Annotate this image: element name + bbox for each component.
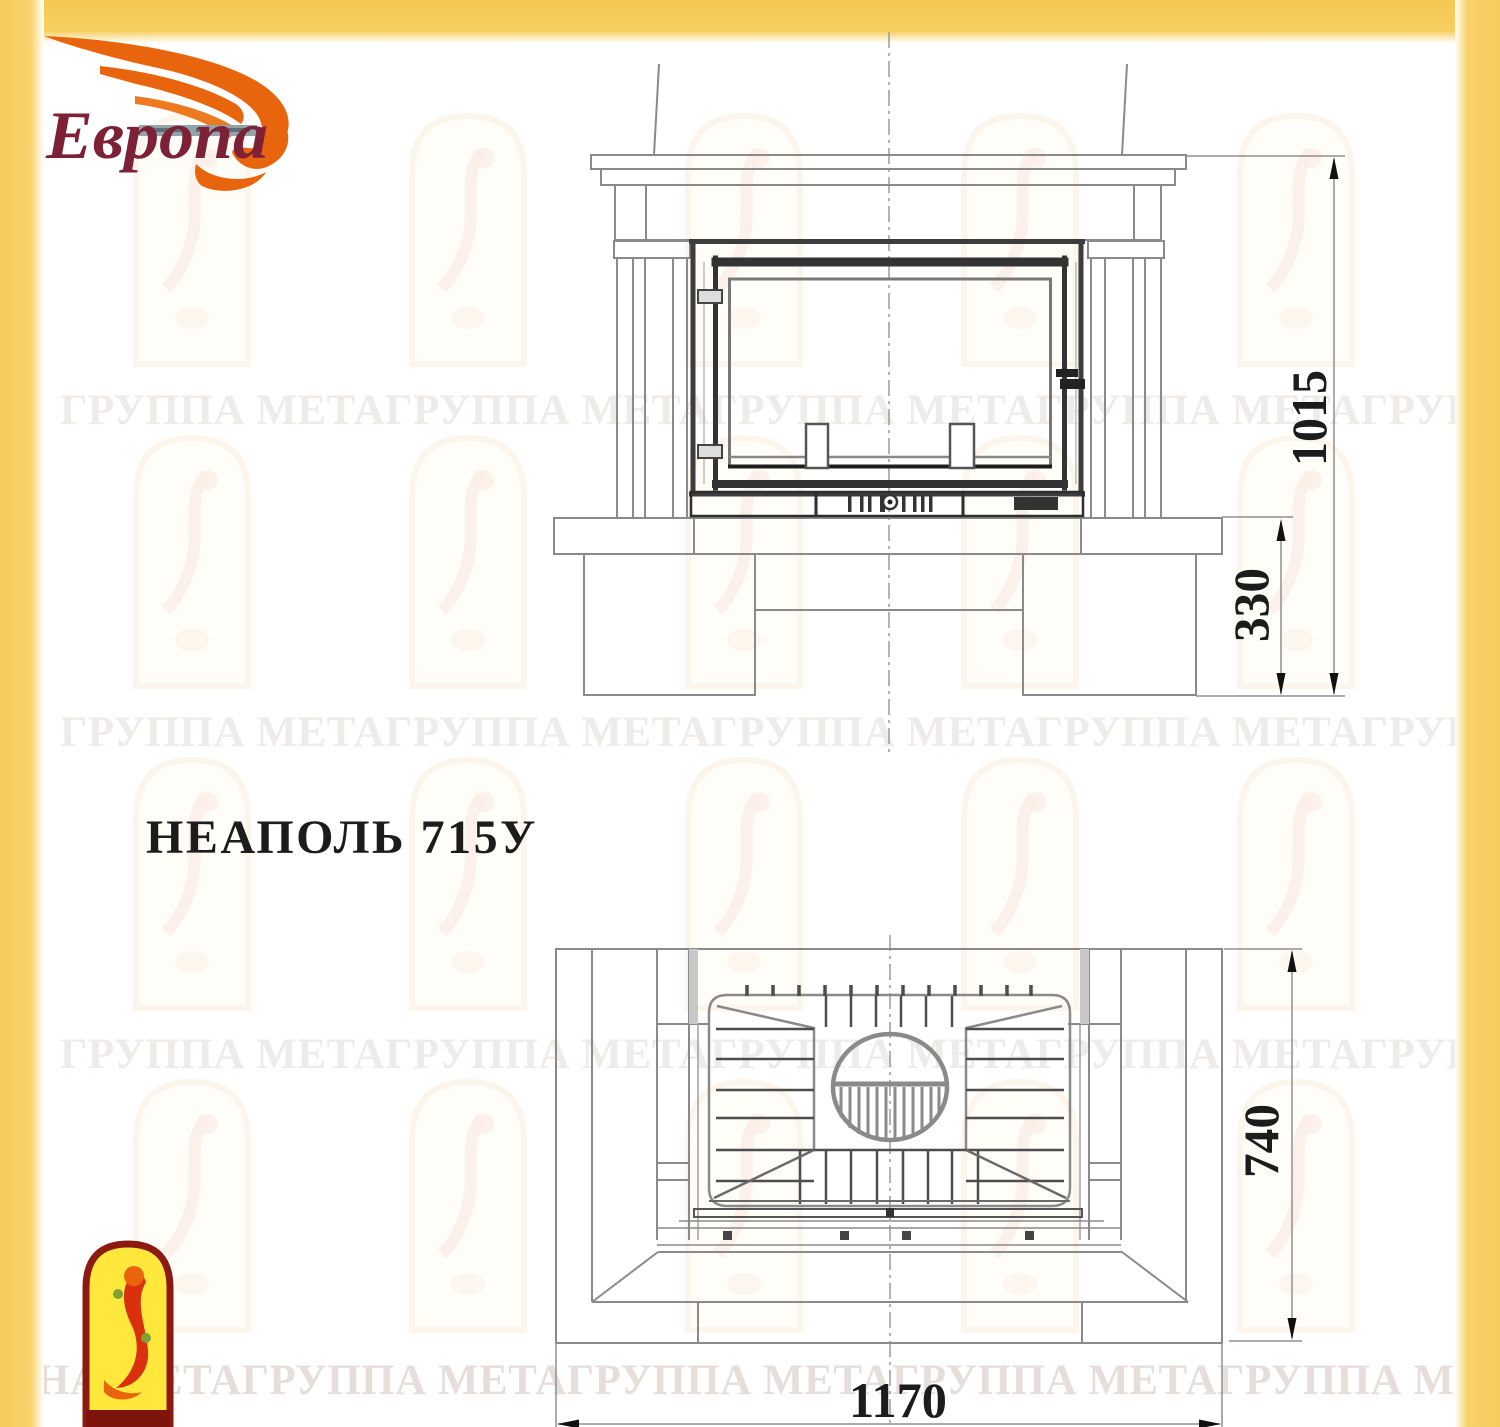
svg-text:1015: 1015 <box>1281 370 1337 466</box>
svg-text:ГРУППА МЕТАГРУППА МЕТАГРУППА М: ГРУППА МЕТАГРУППА МЕТАГРУППА МЕТАГРУППА … <box>60 1031 1500 1078</box>
svg-text:740: 740 <box>1233 1104 1289 1178</box>
svg-text:НЕАПОЛЬ 715У: НЕАПОЛЬ 715У <box>146 811 538 864</box>
svg-text:330: 330 <box>1223 568 1279 642</box>
svg-text:Европа: Европа <box>45 97 268 173</box>
svg-text:1170: 1170 <box>849 1372 947 1427</box>
svg-text:ГРУППА МЕТАГРУППА МЕТАГРУППА М: ГРУППА МЕТАГРУППА МЕТАГРУППА МЕТАГРУППА … <box>60 709 1500 756</box>
svg-text:НА МЕТАГРУППА МЕТАГРУППА МЕТАГ: НА МЕТАГРУППА МЕТАГРУППА МЕТАГРУППА МЕТА… <box>36 1357 1500 1404</box>
